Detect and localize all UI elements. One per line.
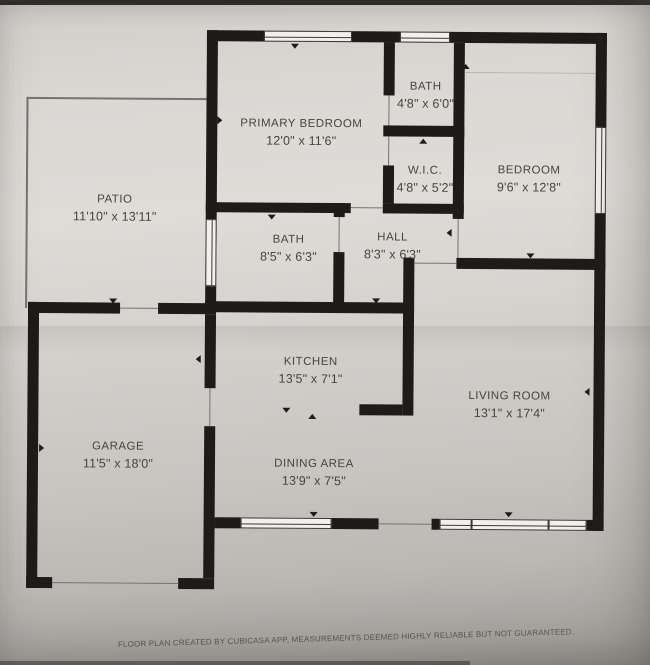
wall bbox=[383, 165, 394, 203]
wall bbox=[383, 203, 464, 214]
arrow-marker-icon bbox=[282, 408, 290, 413]
arrow-marker-icon bbox=[372, 298, 380, 303]
arrow-marker-icon bbox=[291, 44, 299, 49]
room-label-patio: PATIO 11'10" x 13'11" bbox=[73, 193, 157, 224]
door-opening-line bbox=[457, 219, 458, 258]
wall bbox=[593, 33, 607, 531]
wall bbox=[456, 258, 605, 270]
window-mullion bbox=[471, 520, 473, 529]
wall bbox=[383, 125, 464, 137]
arrow-marker-icon bbox=[584, 388, 589, 396]
floor-plan: PRIMARY BEDROOM 12'0" x 11'6" BATH 4'8" … bbox=[0, 0, 650, 665]
door-opening-line bbox=[338, 217, 339, 252]
window bbox=[205, 219, 216, 286]
garage-door-line bbox=[52, 582, 178, 584]
window bbox=[440, 519, 587, 531]
wall bbox=[26, 577, 52, 588]
door-opening-line bbox=[209, 388, 210, 426]
wall bbox=[587, 520, 604, 531]
patio-boundary-line bbox=[27, 97, 208, 100]
wall bbox=[26, 302, 39, 588]
wall bbox=[206, 202, 351, 213]
patio-boundary-line bbox=[25, 97, 28, 308]
room-label-dining-area: DINING AREA 13'9" x 7'5" bbox=[274, 458, 354, 489]
window bbox=[264, 31, 352, 43]
floor-plan-photo: PRIMARY BEDROOM 12'0" x 11'6" BATH 4'8" … bbox=[0, 0, 650, 665]
door-opening-line bbox=[388, 95, 389, 125]
arrow-marker-icon bbox=[268, 215, 276, 220]
door-opening-line bbox=[351, 207, 383, 208]
arrow-marker-icon bbox=[526, 253, 534, 258]
window-mullion bbox=[548, 521, 550, 530]
window bbox=[241, 517, 332, 529]
room-label-living-room: LIVING ROOM 13'1" x 17'4" bbox=[468, 390, 550, 421]
wall bbox=[359, 404, 402, 415]
arrow-marker-icon bbox=[196, 355, 201, 363]
arrow-marker-icon bbox=[109, 298, 117, 303]
arrow-marker-icon bbox=[308, 414, 316, 419]
photo-edge-top bbox=[0, 0, 650, 5]
wall bbox=[384, 42, 395, 95]
room-label-bedroom: BEDROOM 9'6" x 12'8" bbox=[497, 164, 561, 194]
wall bbox=[205, 301, 414, 313]
arrow-marker-icon bbox=[419, 139, 427, 144]
wall bbox=[215, 517, 241, 528]
wall bbox=[203, 426, 215, 578]
entry-opening-line bbox=[379, 523, 432, 524]
photo-edge-bottom bbox=[0, 661, 470, 665]
window bbox=[400, 32, 450, 43]
wall bbox=[205, 314, 217, 388]
wall bbox=[432, 519, 440, 530]
room-label-bath-middle: BATH 8'5" x 6'3" bbox=[260, 234, 317, 264]
room-label-primary-bedroom: PRIMARY BEDROOM 12'0" x 11'6" bbox=[240, 117, 362, 148]
door-opening-line bbox=[388, 136, 389, 165]
door-opening-line bbox=[414, 263, 456, 264]
wall bbox=[334, 203, 345, 217]
arrow-marker-icon bbox=[505, 512, 513, 517]
room-label-kitchen: KITCHEN 13'5" x 7'1" bbox=[279, 356, 343, 386]
arrow-marker-icon bbox=[310, 512, 318, 517]
wall bbox=[332, 518, 379, 529]
wall bbox=[402, 258, 414, 416]
room-label-garage: GARAGE 11'5" x 18'0" bbox=[83, 440, 153, 470]
ceiling-break-line bbox=[465, 72, 596, 74]
room-label-bath-top: BATH 4'8" x 6'0" bbox=[397, 80, 454, 110]
wall bbox=[28, 302, 120, 314]
arrow-marker-icon bbox=[39, 444, 44, 452]
window bbox=[595, 127, 607, 214]
wall bbox=[178, 578, 214, 589]
door-opening-line bbox=[120, 308, 158, 309]
arrow-marker-icon bbox=[447, 229, 452, 237]
arrow-marker-icon bbox=[217, 116, 222, 124]
room-label-wic: W.I.C. 4'8" x 5'2" bbox=[396, 164, 453, 194]
wall bbox=[453, 43, 465, 219]
arrow-marker-icon bbox=[462, 64, 470, 69]
room-label-hall: HALL 8'3" x 6'3" bbox=[364, 231, 421, 261]
